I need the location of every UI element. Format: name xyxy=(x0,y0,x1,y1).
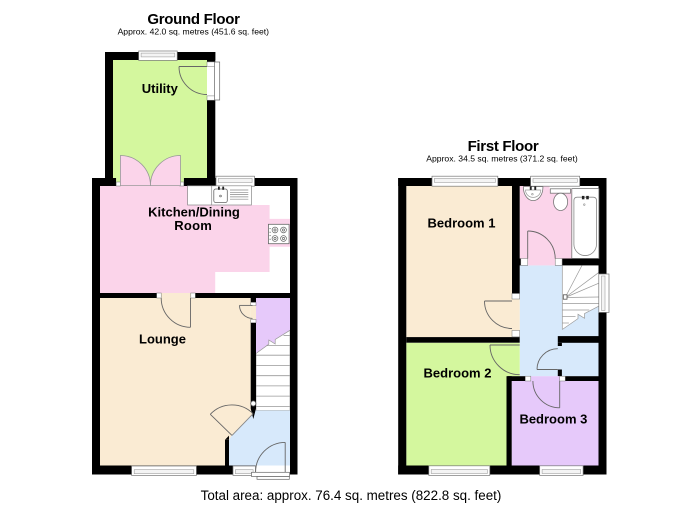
svg-text:Total area: approx. 76.4 sq. m: Total area: approx. 76.4 sq. metres (822… xyxy=(201,488,502,503)
svg-text:Utility: Utility xyxy=(142,81,179,96)
svg-text:Approx. 34.5 sq. metres (371.2: Approx. 34.5 sq. metres (371.2 sq. feet) xyxy=(426,153,578,163)
svg-text:Room: Room xyxy=(174,218,212,233)
svg-text:Bedroom 2: Bedroom 2 xyxy=(424,366,492,381)
svg-text:Bedroom 1: Bedroom 1 xyxy=(428,216,496,231)
svg-text:Approx. 42.0 sq. metres (451.6: Approx. 42.0 sq. metres (451.6 sq. feet) xyxy=(118,27,270,37)
svg-text:Lounge: Lounge xyxy=(139,332,186,347)
svg-text:Kitchen/Dining: Kitchen/Dining xyxy=(148,204,240,219)
svg-text:Ground Floor: Ground Floor xyxy=(147,11,240,28)
svg-text:Bedroom 3: Bedroom 3 xyxy=(519,412,587,427)
